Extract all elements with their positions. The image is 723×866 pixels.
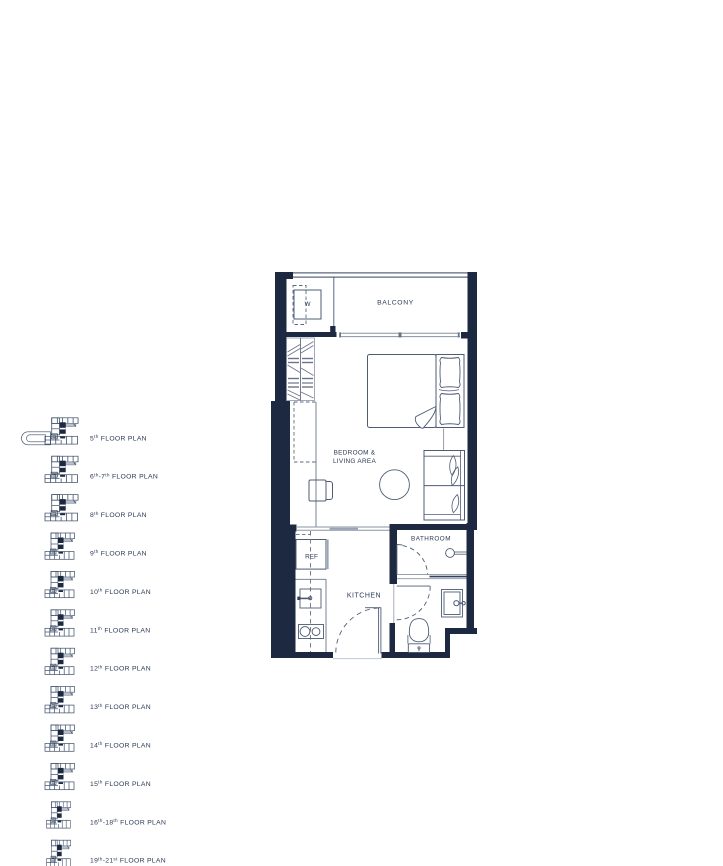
- svg-text:BEDROOM &: BEDROOM &: [334, 450, 376, 457]
- svg-text:BALCONY: BALCONY: [377, 300, 414, 307]
- svg-text:KITCHEN: KITCHEN: [347, 593, 381, 600]
- svg-text:BATHROOM: BATHROOM: [411, 536, 451, 543]
- svg-text:15th FLOOR PLAN: 15th FLOOR PLAN: [90, 780, 151, 788]
- svg-text:13th FLOOR PLAN: 13th FLOOR PLAN: [90, 703, 151, 711]
- svg-text:5th FLOOR PLAN: 5th FLOOR PLAN: [90, 434, 147, 442]
- svg-text:9th FLOOR PLAN: 9th FLOOR PLAN: [90, 549, 147, 557]
- svg-text:REF: REF: [305, 553, 318, 560]
- svg-text:12th FLOOR PLAN: 12th FLOOR PLAN: [90, 664, 151, 672]
- svg-text:LIVING AREA: LIVING AREA: [333, 458, 377, 465]
- svg-text:14th FLOOR PLAN: 14th FLOOR PLAN: [90, 741, 151, 749]
- svg-text:11th FLOOR PLAN: 11th FLOOR PLAN: [90, 626, 150, 634]
- svg-text:W: W: [305, 301, 311, 308]
- svg-text:8th FLOOR PLAN: 8th FLOOR PLAN: [90, 511, 147, 519]
- svg-text:19th-21st FLOOR PLAN: 19th-21st FLOOR PLAN: [90, 856, 166, 864]
- svg-text:16th-18th FLOOR PLAN: 16th-18th FLOOR PLAN: [90, 818, 166, 826]
- svg-text:6th-7th FLOOR PLAN: 6th-7th FLOOR PLAN: [90, 472, 158, 480]
- svg-text:10th FLOOR PLAN: 10th FLOOR PLAN: [90, 588, 151, 596]
